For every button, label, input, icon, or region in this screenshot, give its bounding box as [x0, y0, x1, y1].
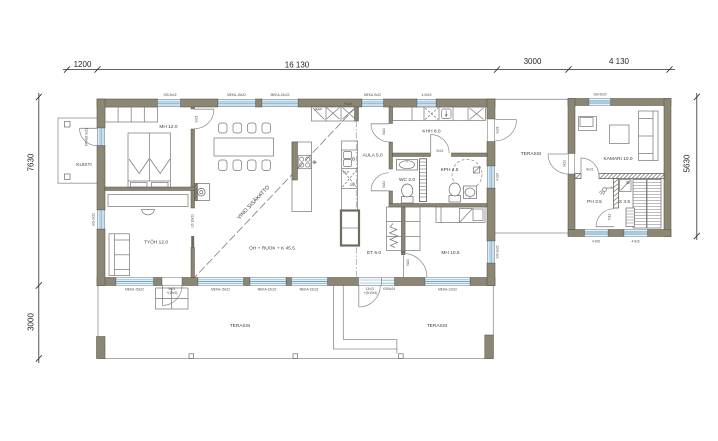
svg-text:MH 10.5: MH 10.5 — [441, 250, 459, 256]
svg-text:16 130: 16 130 — [285, 61, 310, 70]
svg-text:KPH 4.5: KPH 4.5 — [441, 167, 459, 173]
svg-text:TERASSI: TERASSI — [521, 151, 542, 157]
svg-text:SIS-9x20: SIS-9x20 — [593, 93, 606, 97]
svg-text:4 130: 4 130 — [609, 57, 630, 66]
svg-text:9x21: 9x21 — [382, 181, 386, 188]
svg-text:KAMARI 10.0: KAMARI 10.0 — [603, 156, 632, 162]
svg-text:9x21: 9x21 — [563, 160, 567, 167]
svg-text:4-9x5: 4-9x5 — [592, 240, 600, 244]
svg-text:9x21: 9x21 — [496, 126, 500, 133]
svg-text:3000: 3000 — [524, 57, 542, 66]
svg-text:WC 2.0: WC 2.0 — [399, 177, 415, 183]
svg-text:LO 10x21: LO 10x21 — [190, 214, 194, 228]
svg-text:MEKA-15x22: MEKA-15x22 — [258, 288, 277, 292]
svg-text:TERASSI: TERASSI — [427, 323, 448, 329]
svg-text:7630: 7630 — [27, 153, 36, 171]
svg-text:1200: 1200 — [74, 60, 92, 69]
svg-text:KSI9x24: KSI9x24 — [383, 287, 395, 291]
svg-text:MH 12.0: MH 12.0 — [159, 124, 177, 130]
svg-text:TERASSI: TERASSI — [230, 323, 251, 329]
svg-text:4-9x15: 4-9x15 — [422, 93, 432, 97]
svg-text:9x21: 9x21 — [382, 128, 386, 135]
svg-text:SIS-9x22: SIS-9x22 — [496, 245, 500, 258]
svg-text:S 3.5: S 3.5 — [619, 199, 631, 205]
svg-text:JÄÄP: JÄÄP — [314, 108, 322, 112]
svg-text:MEKA-15x22: MEKA-15x22 — [211, 288, 230, 292]
svg-text:+(9/19x3): +(9/19x3) — [364, 291, 378, 295]
svg-text:SIS-9x22: SIS-9x22 — [92, 213, 96, 226]
svg-text:KUISTI: KUISTI — [76, 162, 91, 168]
svg-text:4-9x5: 4-9x5 — [496, 173, 500, 181]
svg-text:ALP: ALP — [343, 171, 349, 175]
svg-text:3000: 3000 — [27, 313, 36, 331]
svg-text:MEKA-15x22: MEKA-15x22 — [227, 93, 246, 97]
svg-text:7x19: 7x19 — [608, 213, 612, 220]
svg-text:KHH 8.0: KHH 8.0 — [422, 129, 440, 135]
svg-text:9x21: 9x21 — [195, 115, 199, 122]
svg-text:DM: DM — [350, 183, 355, 187]
svg-text:9x21: 9x21 — [406, 259, 410, 266]
svg-text:TYÖH 12.0: TYÖH 12.0 — [144, 239, 168, 246]
svg-text:MEKA-15x22: MEKA-15x22 — [271, 93, 290, 97]
svg-text:KPMa3 9x21: KPMa3 9x21 — [85, 128, 89, 146]
svg-text:9x21: 9x21 — [437, 149, 444, 153]
svg-text:+(19x3): +(19x3) — [167, 291, 178, 295]
svg-text:MEKA-15x22: MEKA-15x22 — [125, 288, 144, 292]
svg-text:PA/JK: PA/JK — [344, 102, 353, 106]
svg-text:5630: 5630 — [683, 154, 692, 172]
svg-text:PH 3.5: PH 3.5 — [587, 199, 602, 205]
svg-text:MEKA-9x22: MEKA-9x22 — [364, 93, 381, 97]
svg-text:AULA 5.0: AULA 5.0 — [362, 153, 383, 159]
svg-text:8x21: 8x21 — [587, 168, 594, 172]
svg-text:4-9x5: 4-9x5 — [632, 240, 640, 244]
svg-text:SIS-9x22: SIS-9x22 — [163, 93, 176, 97]
svg-text:OH + RUOK + K 45.5: OH + RUOK + K 45.5 — [249, 246, 295, 252]
svg-text:MEKA-15x22: MEKA-15x22 — [300, 288, 319, 292]
svg-text:ET 6.0: ET 6.0 — [367, 250, 381, 256]
svg-text:MEKA-12x22: MEKA-12x22 — [438, 288, 457, 292]
